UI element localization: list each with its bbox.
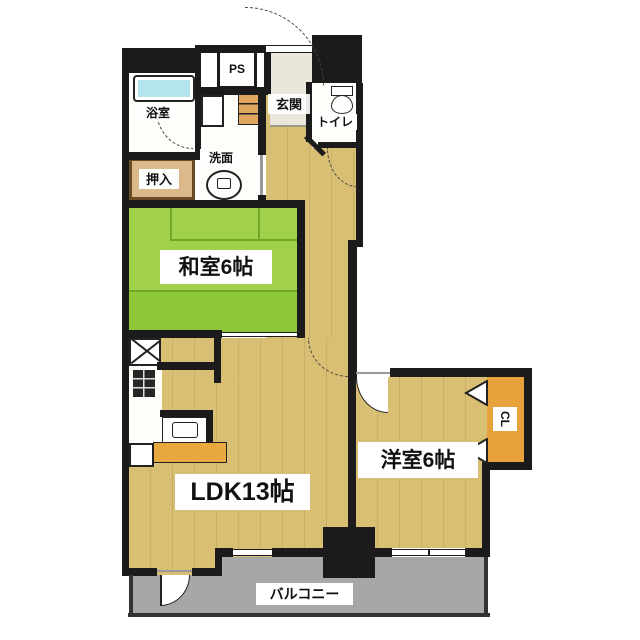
balcony-edge-right (484, 557, 488, 617)
genkan-label: 玄関 (268, 94, 310, 114)
balcony-edge-left (129, 575, 133, 617)
wall-right-mid (348, 240, 357, 377)
oshiire-label: 押入 (139, 169, 179, 189)
washbasin-icon (206, 170, 242, 200)
cl-closet-label: CL (493, 407, 517, 431)
balcony-label: バルコニー (256, 583, 353, 605)
wall-ldk-lower-b (192, 568, 222, 576)
wall-washitsu-bottom (122, 330, 222, 338)
kitchen-corner-box (129, 443, 154, 467)
washitsu-sliding-door (222, 332, 297, 337)
yoshitsu-label: 洋室6帖 (358, 442, 478, 478)
floor-plan-canvas: 和室6帖 LDK13帖 洋室6帖 バルコニー 玄関 トイレ 洗面 浴室 押入 P… (0, 0, 640, 640)
stove-icon (133, 370, 155, 397)
washroom-door-threshold (260, 155, 263, 195)
ldk-label: LDK13帖 (175, 474, 310, 510)
tatami-line (170, 208, 172, 241)
wall-washroom-right-upper (258, 87, 266, 155)
utility-box (201, 95, 224, 127)
cl-door-mark-top (464, 380, 488, 406)
tatami-line (170, 239, 297, 241)
wall-counter-top (160, 410, 206, 417)
wall-bath-right (195, 48, 201, 160)
tatami-strip (129, 291, 297, 332)
bathroom-label: 浴室 (138, 104, 178, 121)
washroom-label: 洗面 (200, 149, 242, 166)
wall-ldk-yoshitsu-divider (348, 377, 356, 548)
toilet-label: トイレ (313, 114, 357, 130)
yoshitsu-window (392, 549, 465, 556)
wall-yoshitsu-top-left (348, 368, 356, 377)
wall-washitsu-top (122, 200, 305, 208)
wall-bath-bottom (122, 152, 201, 160)
wall-left (122, 48, 129, 576)
wall-ldk-lower-a (122, 568, 157, 576)
tatami-line (129, 290, 297, 292)
wall-yoshitsu-top (390, 368, 532, 377)
sink-icon (172, 422, 198, 438)
wall-yoshitsu-bottom-right (465, 548, 490, 557)
washitsu-label: 和室6帖 (160, 250, 272, 284)
wall-kitchen-horizontal (157, 362, 221, 370)
entrance-door-arc (245, 7, 324, 86)
balcony-edge-bottom (128, 613, 490, 617)
tatami-line (258, 208, 260, 241)
pipe-space-label: PS (222, 59, 252, 79)
balcony-door-threshold (157, 570, 192, 572)
wall-counter-right (206, 410, 213, 442)
wall-ldk-bottom-b (272, 548, 327, 557)
wall-block-topleft (122, 48, 195, 73)
bathtub-icon (133, 75, 195, 102)
wall-cl-bottom (482, 462, 532, 470)
structural-pillar (323, 527, 375, 578)
wall-kitchen-vertical (214, 330, 221, 383)
yoshitsu-door-threshold (356, 372, 390, 374)
wall-washitsu-right (297, 208, 305, 338)
wall-right-upper (356, 83, 363, 247)
toilet-bowl-icon (331, 95, 353, 114)
wall-cl-right (524, 368, 532, 470)
kitchen-bar-counter (153, 442, 227, 463)
ldk-window (233, 549, 272, 556)
kitchen-counter (162, 417, 208, 444)
wall-yoshitsu-right (482, 470, 490, 557)
